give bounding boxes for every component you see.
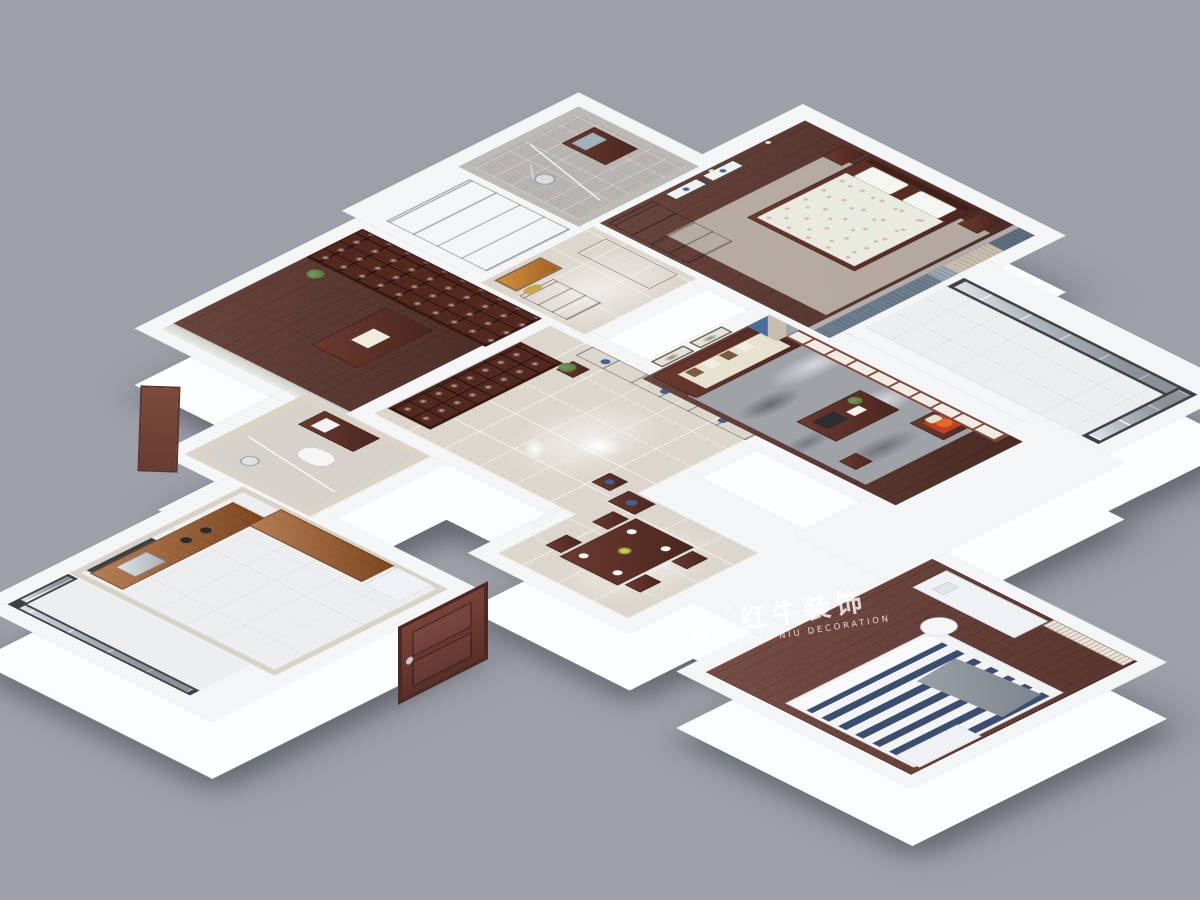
vanity-mirror bbox=[572, 133, 607, 151]
place-setting bbox=[577, 552, 591, 559]
shower-bath-vanity bbox=[562, 127, 638, 165]
dining-table bbox=[560, 518, 694, 585]
place-setting bbox=[659, 545, 673, 552]
toilet bbox=[291, 444, 342, 469]
stove-burner bbox=[178, 536, 195, 544]
wall-sconce bbox=[764, 140, 772, 144]
porcelain-vase bbox=[598, 358, 612, 365]
scene-background: ® 红牛装饰 HONG NIU DECORATION bbox=[0, 0, 1200, 900]
vanity-sink bbox=[311, 418, 341, 433]
study-plant bbox=[303, 268, 328, 281]
shower-head bbox=[529, 172, 560, 188]
stove-burner bbox=[198, 526, 215, 534]
bathroom-shower-head bbox=[236, 454, 264, 468]
vase-table bbox=[591, 473, 628, 491]
ceiling-light-reflection bbox=[522, 440, 548, 458]
study-desk bbox=[311, 307, 433, 368]
place-setting bbox=[610, 569, 624, 576]
balcony-window-ne bbox=[947, 278, 1197, 403]
shower-arm bbox=[529, 164, 535, 179]
place-setting bbox=[625, 528, 639, 535]
registered-mark: ® bbox=[724, 604, 734, 615]
table-flowers bbox=[615, 546, 635, 556]
bull-logo-icon bbox=[684, 611, 724, 646]
calligraphy-paper bbox=[351, 328, 391, 348]
papers bbox=[846, 406, 867, 417]
desk-items bbox=[932, 582, 959, 595]
porcelain-vase bbox=[623, 499, 640, 507]
tea-tray bbox=[812, 411, 849, 429]
ceiling-light-reflection bbox=[566, 430, 634, 464]
porcelain-vase bbox=[603, 478, 617, 485]
window-glass bbox=[954, 281, 1190, 399]
exterior-ac-panel bbox=[138, 385, 181, 472]
